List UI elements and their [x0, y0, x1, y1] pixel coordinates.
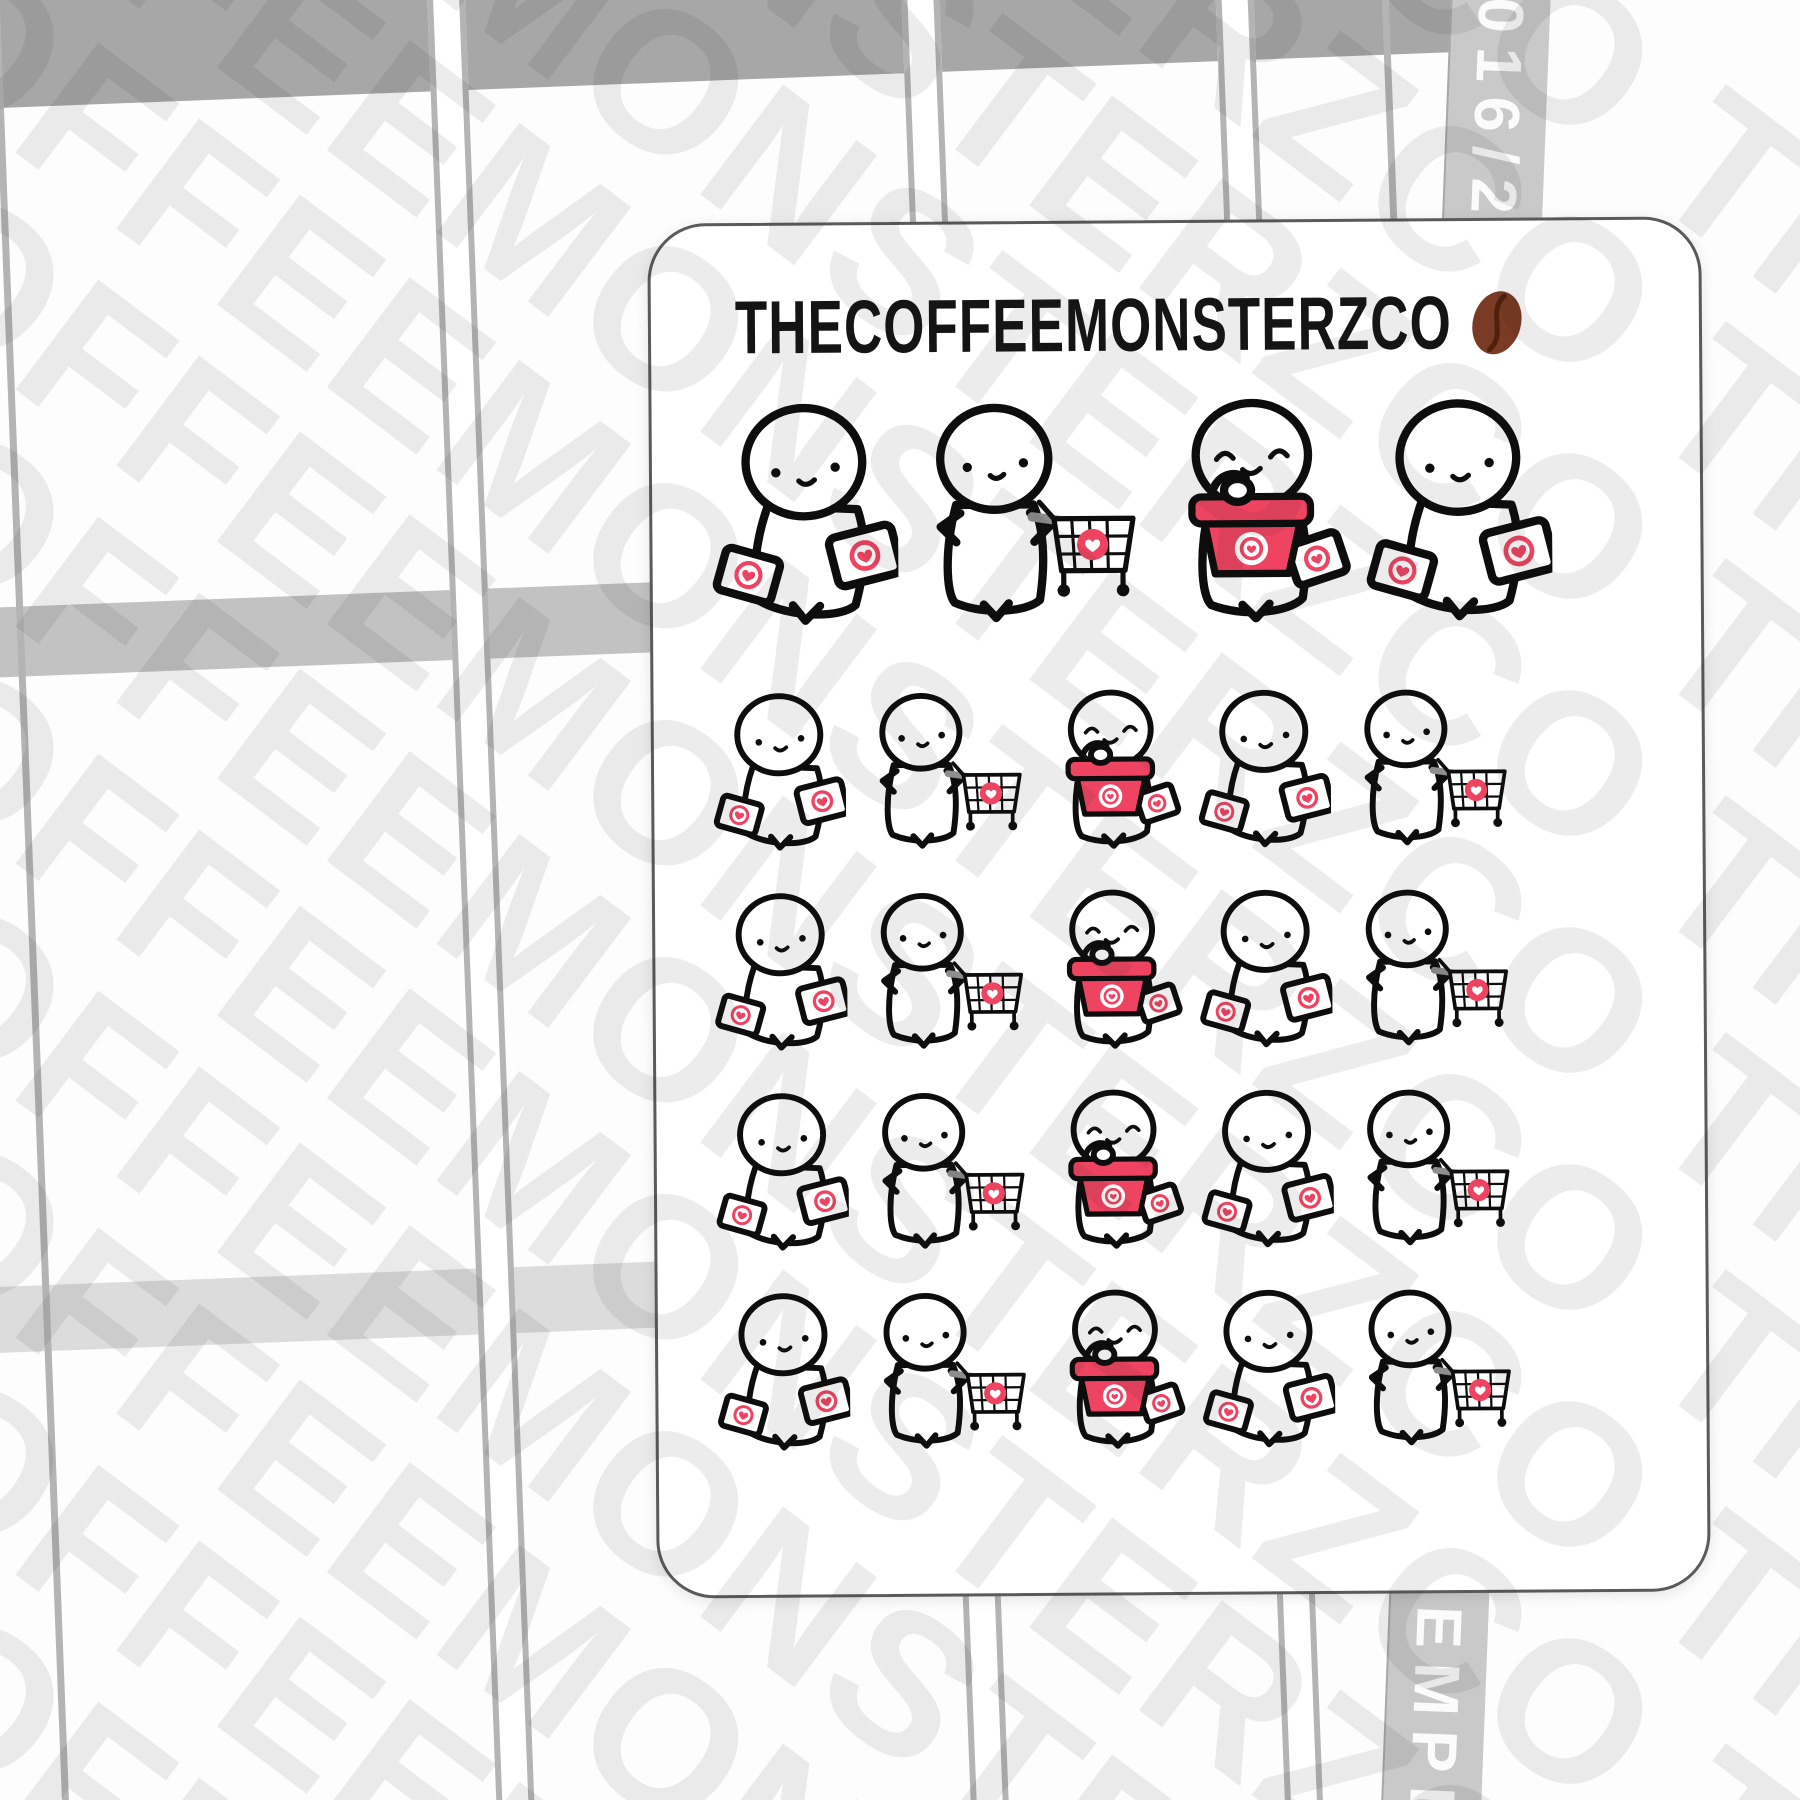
sticker-row: [711, 672, 1642, 878]
emoti-shopping-bags-sticker: [711, 688, 846, 867]
sticker-row: [709, 368, 1641, 672]
emoti-shopping-bags-sticker: [1201, 1285, 1336, 1464]
emoti-shopping-basket-sticker: [1039, 1086, 1188, 1265]
sticker-row: [714, 1072, 1645, 1278]
emoti-shopping-cart-sticker: [860, 1087, 1028, 1266]
emoti-shopping-basket-sticker: [1147, 394, 1357, 645]
emoti-shopping-cart-sticker: [859, 887, 1027, 1066]
emoti-shopping-cart-sticker: [905, 395, 1141, 647]
sticker-sheet: THECOFFEEMONSTERZCO: [647, 216, 1711, 1598]
emoti-shopping-cart-sticker: [1345, 1084, 1513, 1263]
sheet-title: THECOFFEEMONSTERZCO: [735, 280, 1452, 372]
coffee-bean-icon: [1470, 287, 1525, 359]
emoti-shopping-bags-sticker: [714, 1088, 849, 1267]
emoti-shopping-basket-sticker: [1041, 1286, 1190, 1465]
emoti-shopping-cart-sticker: [1344, 884, 1512, 1063]
product-photo: 2016/2017 TEMPLATE THECOFFEEMONSTERZCO T…: [0, 0, 1800, 1800]
emoti-shopping-cart-sticker: [857, 687, 1025, 866]
sticker-row: [713, 872, 1644, 1078]
sticker-row: [716, 1272, 1647, 1478]
sheet-header: THECOFFEEMONSTERZCO: [735, 287, 1524, 365]
emoti-shopping-bags-sticker: [709, 397, 899, 648]
emoti-shopping-bags-sticker: [716, 1288, 851, 1467]
emoti-shopping-cart-sticker: [1342, 684, 1510, 863]
emoti-shopping-bags-sticker: [1363, 392, 1553, 643]
emoti-shopping-basket-sticker: [1038, 886, 1187, 1065]
emoti-shopping-basket-sticker: [1036, 686, 1185, 865]
sticker-grid: [709, 368, 1647, 1478]
planner-column-line: [0, 0, 74, 1800]
emoti-shopping-bags-sticker: [1199, 1085, 1334, 1264]
emoti-shopping-bags-sticker: [713, 888, 848, 1067]
emoti-shopping-cart-sticker: [862, 1287, 1030, 1466]
emoti-shopping-cart-sticker: [1347, 1284, 1515, 1463]
planner-column-gap: [424, 0, 539, 1800]
emoti-shopping-bags-sticker: [1198, 885, 1333, 1064]
emoti-shopping-bags-sticker: [1196, 685, 1331, 864]
